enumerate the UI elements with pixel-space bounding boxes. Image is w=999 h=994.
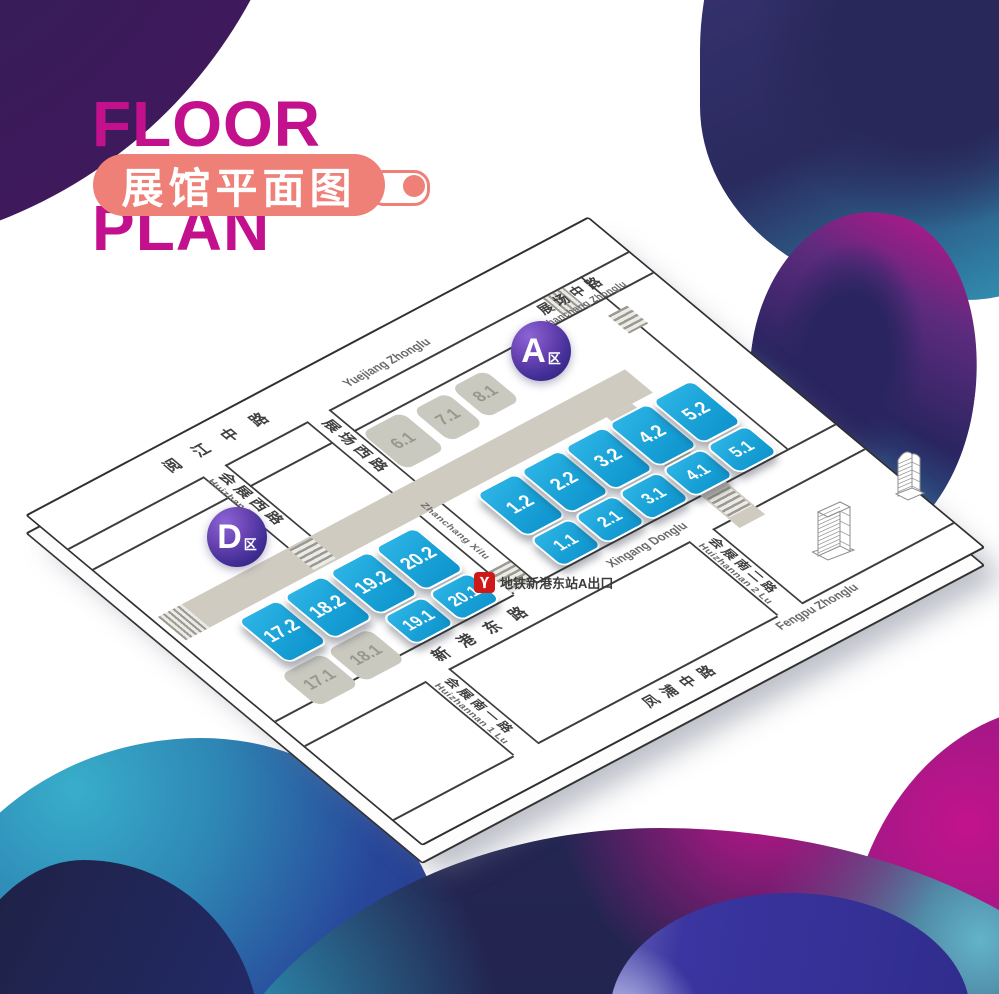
zone-badge-a: A 区 [511,321,571,381]
metro-exit-label: 地铁新港东站A出口 [500,573,613,592]
street-label-huizhannan1: 会展南一路 Huizhannan 1 Lu [431,674,526,746]
hall-label: 3.2 [589,445,628,471]
building-icon [812,490,860,571]
hall-label: 19.1 [397,607,440,635]
street-label-huizhannan2: 会展南二路 Huizhannan 2 Lu [695,534,790,606]
blob-white-notch [719,902,804,982]
hall-label: 19.2 [350,568,398,599]
metro-exit-marker: 地铁新港东站A出口 [474,572,613,593]
road-line [249,443,332,488]
building-icon [894,446,928,511]
hall-label: 6.1 [386,429,421,453]
road-line [68,477,204,550]
hall-label: 5.2 [677,399,716,425]
hall-label: 8.1 [468,382,503,406]
hall-label: 3.1 [636,484,671,508]
hall-label: 2.2 [545,469,584,495]
hall-label: 18.2 [304,592,352,623]
zone-suffix: 区 [244,534,257,553]
metro-icon [474,572,495,593]
hall-label: 1.2 [501,492,540,518]
title-pill-dot [403,175,425,197]
hall-label: 18.1 [345,641,388,669]
title-subtitle: 展馆平面图 [121,155,356,216]
title-subtitle-pill: 展馆平面图 [93,154,385,216]
hall-label: 17.1 [298,666,341,694]
hall-label: 17.2 [259,616,307,647]
zone-letter: A [521,334,546,368]
poster-canvas: 阅江中路 Yuejiang Zhonglu 展场中路 Zhanchang Zho… [0,0,999,994]
hall-label: 4.1 [680,461,715,485]
hall-label: 2.1 [592,508,627,532]
hall-label: 7.1 [431,405,466,429]
hall-label: 1.1 [548,531,583,555]
hall-label: 20.2 [396,544,444,575]
zone-badge-d: D 区 [207,507,267,567]
hall-label: 4.2 [633,422,672,448]
zone-suffix: 区 [548,348,561,367]
hall-label: 5.1 [724,438,759,462]
street-label-yuejiang-cn: 阅江中路 [155,399,290,476]
title-floor: FLOOR [92,92,522,156]
blob-top-right [700,0,999,300]
blob-bottom-band [180,828,999,994]
blob-bottom-left-navy [0,860,260,994]
blob-bottom-hill [610,893,970,994]
title-block: FLOOR PLAN 展馆平面图 [92,92,522,282]
blob-bottom-right-corner [845,705,999,994]
zone-letter: D [217,520,242,554]
